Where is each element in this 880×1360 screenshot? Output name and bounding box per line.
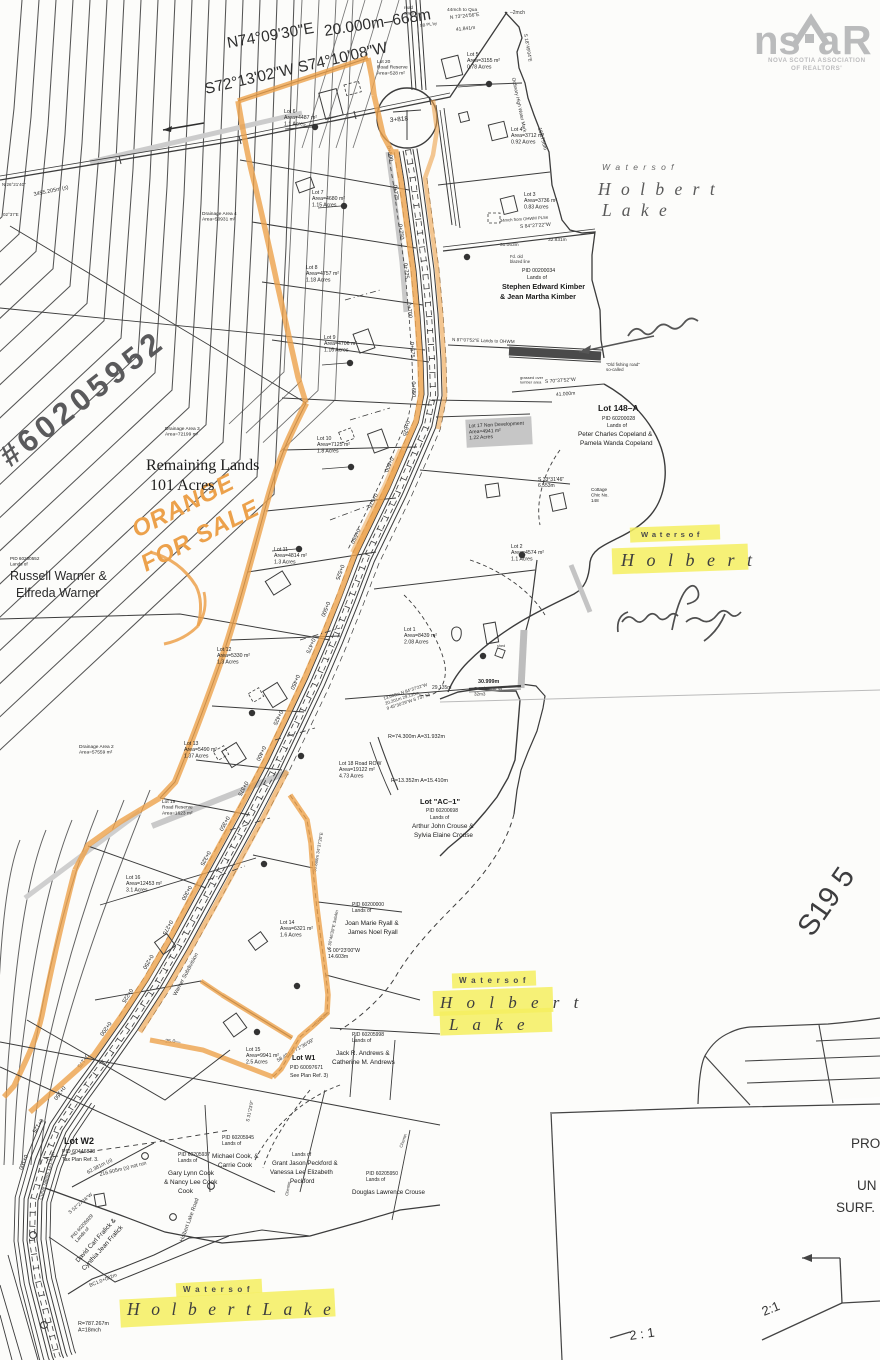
svg-text:R=74.300m A=31.932m: R=74.300m A=31.932m	[388, 734, 445, 740]
svg-text:1.1 Acres: 1.1 Acres	[284, 121, 306, 127]
svg-text:Area=72199 m²: Area=72199 m²	[165, 432, 199, 438]
svg-text:4.73 Acres: 4.73 Acres	[339, 773, 364, 779]
svg-text:32m3: 32m3	[474, 691, 486, 696]
svg-text:PROV: PROV	[851, 1136, 880, 1151]
svg-text:L a k e: L a k e	[601, 200, 670, 220]
svg-text:Area=57559 m²: Area=57559 m²	[79, 750, 113, 756]
svg-text:R=13.352m A=15.410m: R=13.352m A=15.410m	[391, 778, 448, 784]
svg-text:blazed line: blazed line	[510, 259, 531, 264]
svg-text:PID 00200034: PID 00200034	[522, 268, 555, 274]
svg-text:W a t e r s o f: W a t e r s o f	[183, 1285, 251, 1294]
svg-text:1.3 Acres: 1.3 Acres	[274, 559, 296, 565]
svg-text:PID 60200698: PID 60200698	[426, 808, 458, 814]
svg-text:Lot W2: Lot W2	[64, 1136, 94, 1146]
svg-text:S 89°58'56"W: S 89°58'56"W	[474, 686, 503, 691]
svg-text:Area=4814 m²: Area=4814 m²	[274, 553, 307, 559]
svg-text:Drainage Area 4: Drainage Area 4	[202, 211, 237, 217]
svg-text:0.92 Acres: 0.92 Acres	[511, 139, 536, 145]
svg-text:0.83 Acres: 0.83 Acres	[524, 204, 549, 210]
svg-text:29.135m: 29.135m	[432, 685, 451, 691]
svg-text:1.16 Acres: 1.16 Acres	[324, 347, 349, 353]
svg-text:1.18 Acres: 1.18 Acres	[306, 277, 331, 283]
svg-text:Area=8439 m²: Area=8439 m²	[404, 633, 437, 639]
svg-text:Lot 20: Lot 20	[377, 59, 391, 65]
svg-text:R=787.267m: R=787.267m	[78, 1321, 110, 1327]
svg-text:James Noel Ryall: James Noel Ryall	[348, 929, 398, 936]
svg-text:Arthur John Crouse &: Arthur John Crouse &	[412, 823, 474, 830]
svg-text:Area=7125 m²: Area=7125 m²	[317, 442, 350, 448]
svg-text:Area=12453 m²: Area=12453 m²	[126, 881, 162, 887]
svg-text:14.603m: 14.603m	[328, 954, 348, 960]
svg-text:Lands of: Lands of	[527, 275, 547, 281]
svg-text:Area=6321 m²: Area=6321 m²	[280, 926, 313, 932]
svg-text:Cook: Cook	[178, 1188, 194, 1195]
svg-text:Peter Charles Copeland &: Peter Charles Copeland &	[578, 431, 653, 438]
svg-text:Area=1623 m²: Area=1623 m²	[162, 810, 193, 816]
svg-text:W a t e r s o f: W a t e r s o f	[602, 162, 675, 172]
svg-text:Stephen Edward Kimber: Stephen Edward Kimber	[502, 282, 585, 291]
svg-text:Lot 18 Road ROW: Lot 18 Road ROW	[339, 761, 381, 767]
svg-text:Grant Jason Peckford &: Grant Jason Peckford &	[272, 1160, 339, 1167]
svg-text:& Jean Martha Kimber: & Jean Martha Kimber	[500, 292, 576, 301]
svg-text:W a t e r s o f: W a t e r s o f	[641, 530, 700, 539]
svg-text:Area=4487 m²: Area=4487 m²	[284, 115, 317, 121]
svg-text:ends: ends	[404, 10, 415, 15]
svg-text:N 26°21'40": N 26°21'40"	[2, 182, 26, 187]
svg-text:Lands of: Lands of	[430, 815, 450, 821]
svg-text:1.37 Acres: 1.37 Acres	[184, 753, 209, 759]
svg-text:Area=50931 m²: Area=50931 m²	[202, 217, 236, 223]
svg-text:See Plan Ref. 3): See Plan Ref. 3)	[290, 1073, 328, 1079]
svg-text:Area=19122 m²: Area=19122 m²	[339, 767, 375, 773]
svg-text:L a k e: L a k e	[448, 1015, 530, 1034]
svg-text:32.831m: 32.831m	[548, 237, 567, 243]
svg-text:Area=3712 m²: Area=3712 m²	[511, 133, 544, 139]
svg-text:Lot 8: Lot 8	[306, 265, 318, 271]
svg-text:Road Reserve: Road Reserve	[162, 805, 193, 811]
svg-text:PID 60446838: PID 60446838	[62, 1149, 95, 1155]
svg-text:lumber area: lumber area	[520, 380, 542, 385]
svg-text:Lot 1: Lot 1	[404, 627, 416, 633]
svg-text:Lot 12: Lot 12	[217, 647, 232, 653]
svg-text:Gary Lynn Cook: Gary Lynn Cook	[168, 1170, 215, 1177]
svg-text:Douglas Lawrence Crouse: Douglas Lawrence Crouse	[352, 1189, 425, 1196]
svg-text:Area=9941 m²: Area=9941 m²	[246, 1053, 279, 1059]
svg-text:Area=3736 m²: Area=3736 m²	[524, 198, 557, 204]
svg-text:101 Acres: 101 Acres	[150, 477, 214, 494]
svg-text:Lot 15: Lot 15	[246, 1047, 261, 1053]
svg-text:Lot "AC–1": Lot "AC–1"	[420, 797, 460, 806]
svg-text:Lot 7: Lot 7	[312, 190, 324, 196]
svg-text:1.22 Acres: 1.22 Acres	[469, 434, 493, 441]
svg-text:S 00°23'00"W: S 00°23'00"W	[328, 948, 360, 954]
svg-text:Lot 6: Lot 6	[284, 109, 296, 115]
svg-text:1.3 Acres: 1.3 Acres	[217, 659, 239, 665]
svg-text:2.5 Acres: 2.5 Acres	[246, 1059, 268, 1065]
svg-text:Area=4680 m²: Area=4680 m²	[312, 196, 345, 202]
svg-text:Elfreda Warner: Elfreda Warner	[16, 586, 100, 600]
svg-text:0.78 Acres: 0.78 Acres	[467, 64, 492, 70]
svg-text:Cottage: Cottage	[591, 487, 608, 492]
svg-text:Lot 3: Lot 3	[524, 192, 536, 198]
svg-text:148: 148	[591, 498, 599, 503]
svg-text:1.6 Acres: 1.6 Acres	[280, 932, 302, 938]
svg-text:Lot 13: Lot 13	[184, 741, 199, 747]
svg-text:Lands of: Lands of	[607, 423, 627, 429]
svg-text:Remaining Lands: Remaining Lands	[146, 457, 259, 474]
svg-text:1.8 Acres: 1.8 Acres	[317, 448, 339, 454]
svg-text:Drainage Area 3: Drainage Area 3	[165, 426, 200, 432]
svg-text:Area=4574 m²: Area=4574 m²	[511, 550, 544, 556]
svg-text:Road Reserve: Road Reserve	[377, 65, 408, 71]
svg-text:W a t e r s o f: W a t e r s o f	[459, 976, 527, 985]
svg-text:NOVA SCOTIA ASSOCIATION: NOVA SCOTIA ASSOCIATION	[768, 57, 866, 64]
svg-text:H o l b e r t: H o l b e r t	[597, 179, 718, 199]
svg-text:Lot 16: Lot 16	[126, 875, 141, 881]
svg-text:Lands of: Lands of	[10, 561, 28, 566]
svg-text:Lot 9: Lot 9	[324, 335, 336, 341]
svg-text:2.08 Acres: 2.08 Acres	[404, 639, 429, 645]
svg-text:PID 60200028: PID 60200028	[602, 416, 635, 422]
svg-text:Lands of: Lands of	[178, 1158, 198, 1164]
svg-text:PID 60097671: PID 60097671	[290, 1065, 323, 1071]
svg-text:Lot 19: Lot 19	[162, 799, 176, 805]
svg-text:Lot 2: Lot 2	[511, 544, 523, 550]
svg-text:PID 60200552: PID 60200552	[10, 556, 40, 561]
svg-text:30.999m: 30.999m	[478, 679, 499, 685]
svg-text:Area=5490 m²: Area=5490 m²	[184, 747, 217, 753]
svg-text:Lands of: Lands of	[222, 1141, 242, 1147]
svg-text:Lands of: Lands of	[352, 908, 372, 914]
svg-text:Lot 10: Lot 10	[317, 436, 332, 442]
svg-text:Tax Plan Ref. 3.: Tax Plan Ref. 3.	[62, 1157, 99, 1163]
svg-text:31.063m: 31.063m	[500, 242, 519, 248]
svg-text:Lot 5: Lot 5	[467, 52, 479, 58]
svg-text:H o l b e r t: H o l b e r t	[439, 993, 583, 1012]
svg-text:so-called: so-called	[606, 367, 624, 372]
svg-text:Jack R. Andrews &: Jack R. Andrews &	[336, 1050, 390, 1057]
svg-text:Drainage Area 2: Drainage Area 2	[79, 744, 114, 750]
svg-text:Vanessa Lee Elizabeth: Vanessa Lee Elizabeth	[270, 1169, 333, 1176]
svg-text:02°37'E: 02°37'E	[3, 212, 19, 217]
svg-text:Area=5330 m²: Area=5330 m²	[217, 653, 250, 659]
svg-text:Lot 14: Lot 14	[280, 920, 295, 926]
svg-text:Lot 4: Lot 4	[511, 127, 523, 133]
svg-text:OF REALTORS': OF REALTORS'	[791, 65, 842, 72]
svg-text:Michael Cook, &: Michael Cook, &	[212, 1153, 259, 1160]
svg-text:UN: UN	[857, 1178, 877, 1193]
svg-text:Lands of: Lands of	[366, 1177, 386, 1183]
svg-text:Lands of: Lands of	[352, 1038, 372, 1044]
svg-text:–2mch: –2mch	[510, 10, 525, 16]
svg-text:Russell Warner &: Russell Warner &	[10, 569, 107, 583]
svg-text:road: road	[404, 5, 414, 10]
svg-text:Area=3155 m²: Area=3155 m²	[467, 58, 500, 64]
svg-text:Lot 148–A: Lot 148–A	[598, 403, 639, 413]
svg-text:Sylvia Elaine Crouse: Sylvia Elaine Crouse	[414, 832, 473, 839]
svg-text:A=18mch: A=18mch	[78, 1327, 101, 1333]
svg-text:Area=528 m²: Area=528 m²	[377, 70, 405, 76]
svg-text:Pamela Wanda Copeland: Pamela Wanda Copeland	[580, 440, 653, 447]
svg-text:Joan Marie Ryall &: Joan Marie Ryall &	[345, 920, 399, 927]
svg-text:6.553m: 6.553m	[538, 483, 555, 489]
svg-text:shed: shed	[497, 644, 505, 648]
svg-text:Area=4706 m²: Area=4706 m²	[324, 341, 357, 347]
svg-text:H o l b e r t L a k e: H o l b e r t L a k e	[126, 1299, 335, 1319]
svg-text:Chic No.: Chic No.	[591, 492, 609, 497]
svg-text:Catherine M. Andrews: Catherine M. Andrews	[332, 1059, 395, 1066]
svg-text:H o l b e r t: H o l b e r t	[620, 550, 756, 570]
svg-text:Area=4757 m²: Area=4757 m²	[306, 271, 339, 277]
svg-text:SURF.: SURF.	[836, 1200, 875, 1215]
svg-text:3.1 Acres: 3.1 Acres	[126, 887, 148, 893]
svg-text:Lot W1: Lot W1	[292, 1055, 315, 1062]
